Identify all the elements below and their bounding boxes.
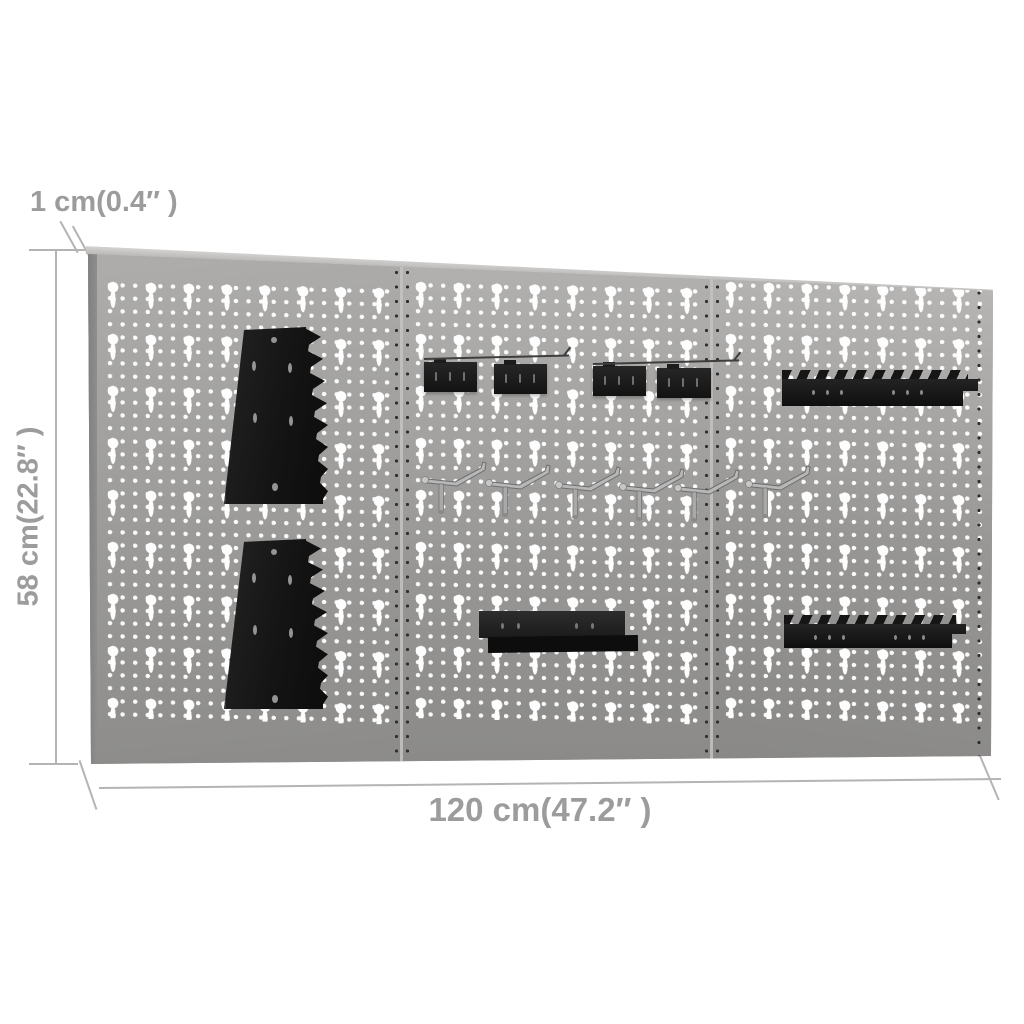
small-shelf-front-lip <box>488 635 638 653</box>
screwdriver-rack-upper <box>782 379 978 406</box>
width-dimension-right-tick <box>978 754 999 801</box>
height-dimension-top-tick <box>29 249 88 251</box>
screwdriver-rack-lower-teeth <box>784 615 956 625</box>
product-dimension-diagram: 1 cm(0.4″ ) 58 cm(22.8″ ) 120 cm(47.2″ ) <box>0 0 1024 1024</box>
pegboard-hook-2 <box>483 461 557 517</box>
pegboard-hook-5 <box>672 466 746 522</box>
pegboard-hook-6 <box>743 462 817 518</box>
clip-bracket-3 <box>593 366 646 396</box>
width-dimension-left-tick <box>79 760 98 810</box>
width-dimension-line <box>99 778 1001 789</box>
height-dimension-line <box>55 249 57 764</box>
screwdriver-rack-upper-teeth <box>782 370 968 380</box>
height-dimension-label: 58 cm(22.8″ ) <box>13 386 46 648</box>
clip-bracket-1 <box>424 362 477 392</box>
pegboard-hook-3 <box>553 463 627 519</box>
panel-right-flange-holes <box>976 258 982 758</box>
screwdriver-rack-lower <box>784 624 966 648</box>
clip-bracket-4 <box>657 368 711 398</box>
panel-seam-1 <box>394 252 410 764</box>
height-dimension-bottom-tick <box>29 763 78 765</box>
panel-left-flange <box>88 252 97 764</box>
clip-bracket-2 <box>494 364 547 394</box>
pegboard-hook-1 <box>419 458 493 514</box>
thickness-dimension-label: 1 cm(0.4″ ) <box>30 186 178 219</box>
small-shelf-back <box>479 611 625 638</box>
width-dimension-label: 120 cm(47.2″ ) <box>310 791 770 829</box>
